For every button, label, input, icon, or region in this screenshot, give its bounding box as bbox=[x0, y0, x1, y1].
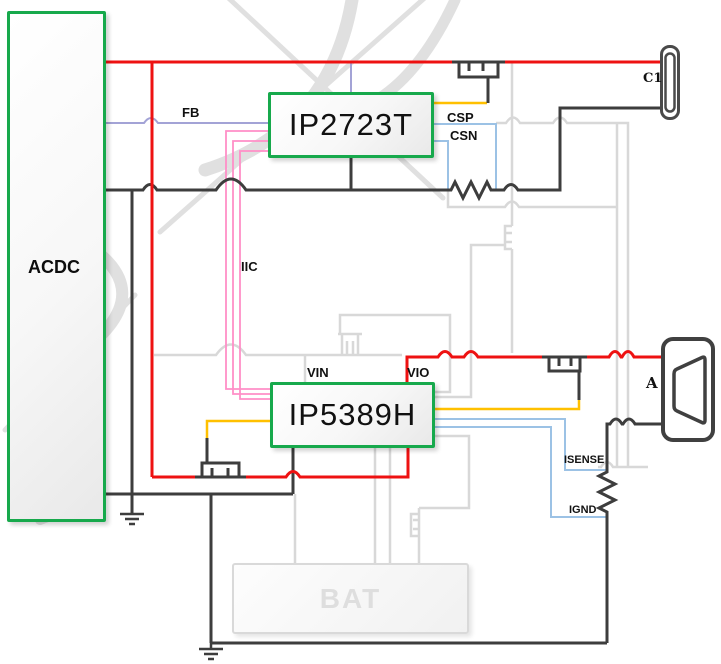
a-return-wire bbox=[599, 419, 663, 643]
vin-label: VIN bbox=[307, 366, 329, 379]
type-a-connector bbox=[663, 339, 713, 440]
vbus-a-rail bbox=[587, 352, 663, 358]
battery-label: BAT bbox=[320, 583, 381, 615]
csn-wire bbox=[434, 141, 448, 189]
type-c-connector bbox=[662, 47, 679, 119]
gray-mosfet bbox=[338, 334, 362, 355]
mosfet-c1 bbox=[452, 62, 505, 103]
vio-label: VIO bbox=[407, 366, 429, 379]
mosfet-a bbox=[542, 357, 587, 400]
mosfet-vin bbox=[195, 438, 246, 477]
csp-label: CSP bbox=[447, 111, 474, 124]
gray-bat-mosfet bbox=[411, 508, 419, 563]
acdc-label: ACDC bbox=[28, 257, 80, 278]
ip2723t-block: IP2723T bbox=[268, 92, 434, 158]
ignd-label: IGND bbox=[569, 505, 597, 516]
c1-port-label: C1 bbox=[643, 72, 662, 85]
fb-label: FB bbox=[182, 106, 199, 119]
vin-rail bbox=[152, 448, 408, 477]
ip5389h-block: IP5389H bbox=[270, 382, 435, 448]
csn-label: CSN bbox=[450, 129, 477, 142]
ip5389h-label: IP5389H bbox=[289, 397, 417, 433]
ip2723t-label: IP2723T bbox=[289, 107, 413, 143]
isense-label: ISENSE bbox=[564, 455, 604, 466]
battery-block: BAT bbox=[232, 563, 469, 634]
ground-symbol-1 bbox=[120, 514, 144, 524]
schematic-canvas: ACDC IP2723T IP5389H BAT FB CSP CSN IIC … bbox=[0, 0, 721, 664]
acdc-block: ACDC bbox=[7, 11, 106, 522]
gray-gate-wire bbox=[435, 245, 505, 397]
ground-symbol-2 bbox=[199, 643, 223, 659]
gray-vin-rail bbox=[154, 345, 402, 356]
a-port-label: A bbox=[646, 376, 658, 391]
iic-label: IIC bbox=[241, 260, 258, 273]
